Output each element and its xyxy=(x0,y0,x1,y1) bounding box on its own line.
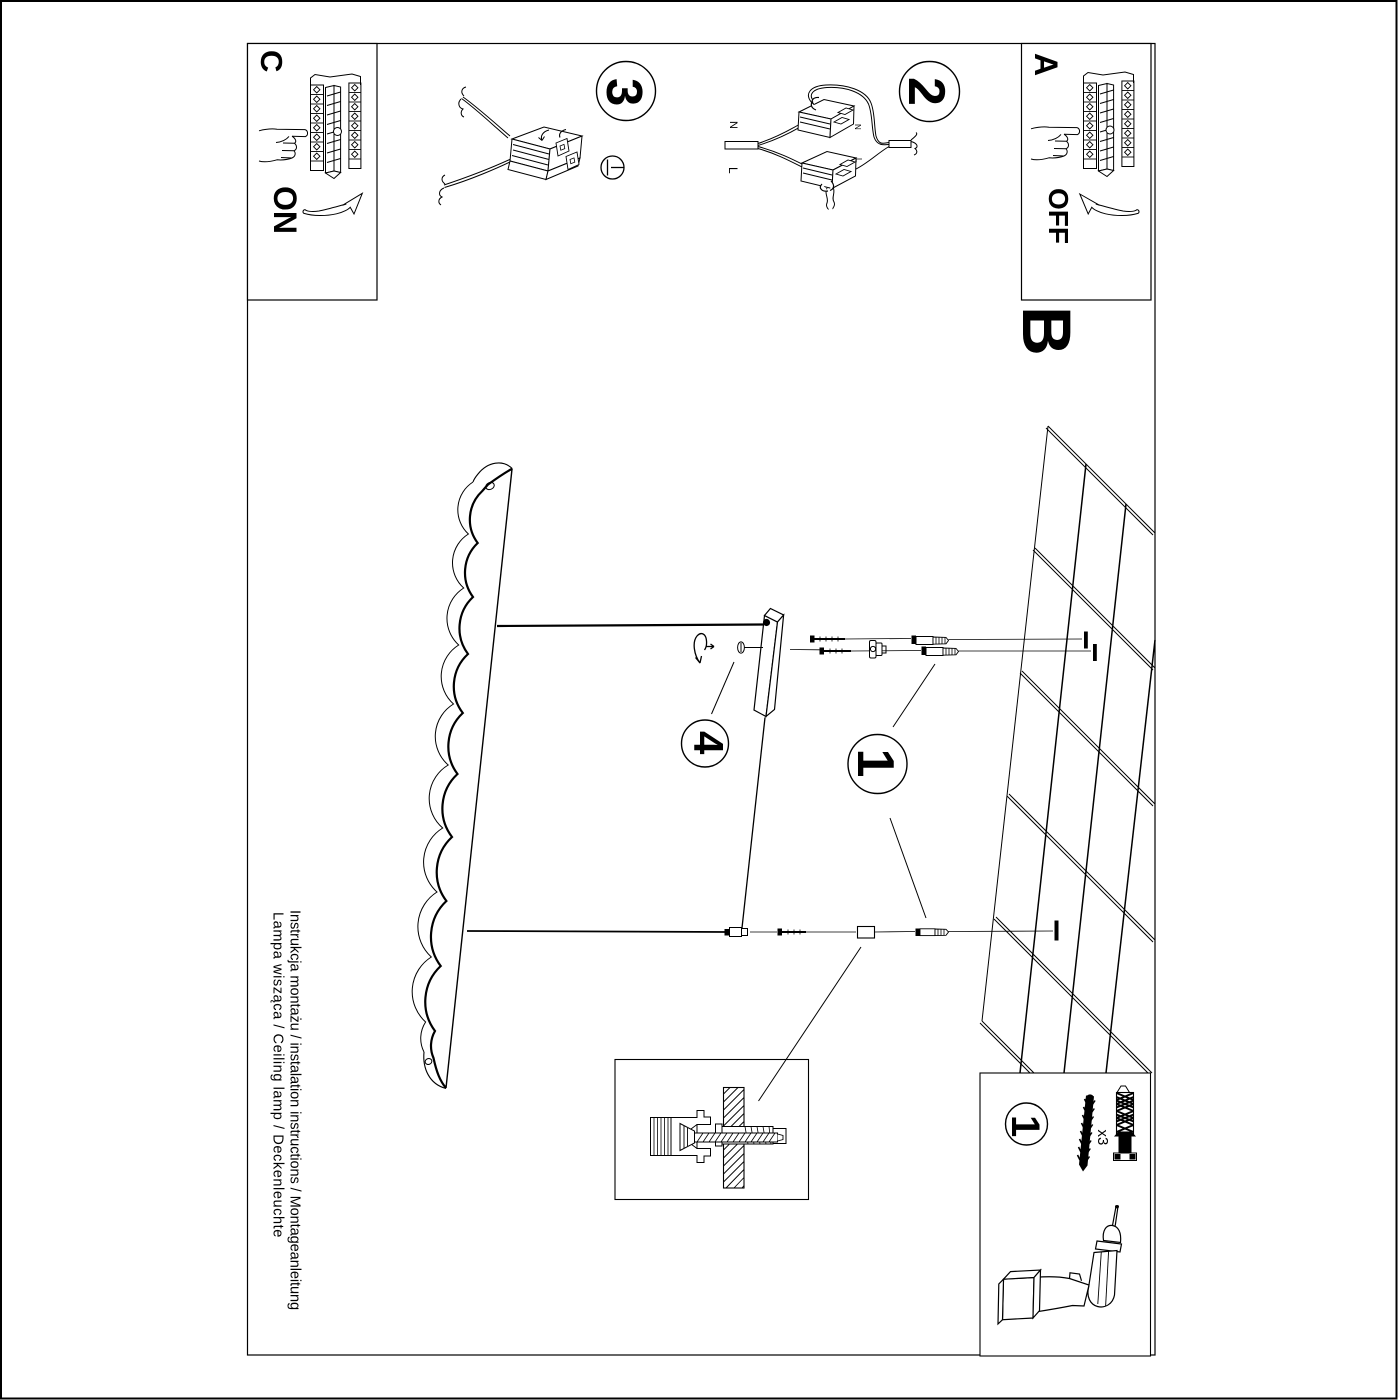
svg-text:N: N xyxy=(727,121,739,129)
svg-text:ON: ON xyxy=(267,186,303,234)
svg-text:L: L xyxy=(726,167,740,174)
svg-text:A: A xyxy=(1028,53,1064,76)
svg-text:1: 1 xyxy=(1003,1115,1047,1137)
svg-text:Instrukcja montażu / instalati: Instrukcja montażu / instalation instruc… xyxy=(287,910,303,1310)
svg-text:L: L xyxy=(854,158,863,163)
svg-text:x3: x3 xyxy=(1094,1130,1111,1146)
svg-text:OFF: OFF xyxy=(1043,188,1074,244)
svg-text:3: 3 xyxy=(596,78,653,106)
svg-text:4: 4 xyxy=(685,731,732,755)
svg-text:Lampa wisząca / Ceiling lamp /: Lampa wisząca / Ceiling lamp / Deckenleu… xyxy=(270,912,286,1238)
svg-text:N: N xyxy=(853,124,862,130)
svg-text:2: 2 xyxy=(897,77,955,106)
svg-text:B: B xyxy=(1008,306,1085,356)
svg-text:C: C xyxy=(254,50,289,72)
svg-text:1: 1 xyxy=(846,749,904,778)
